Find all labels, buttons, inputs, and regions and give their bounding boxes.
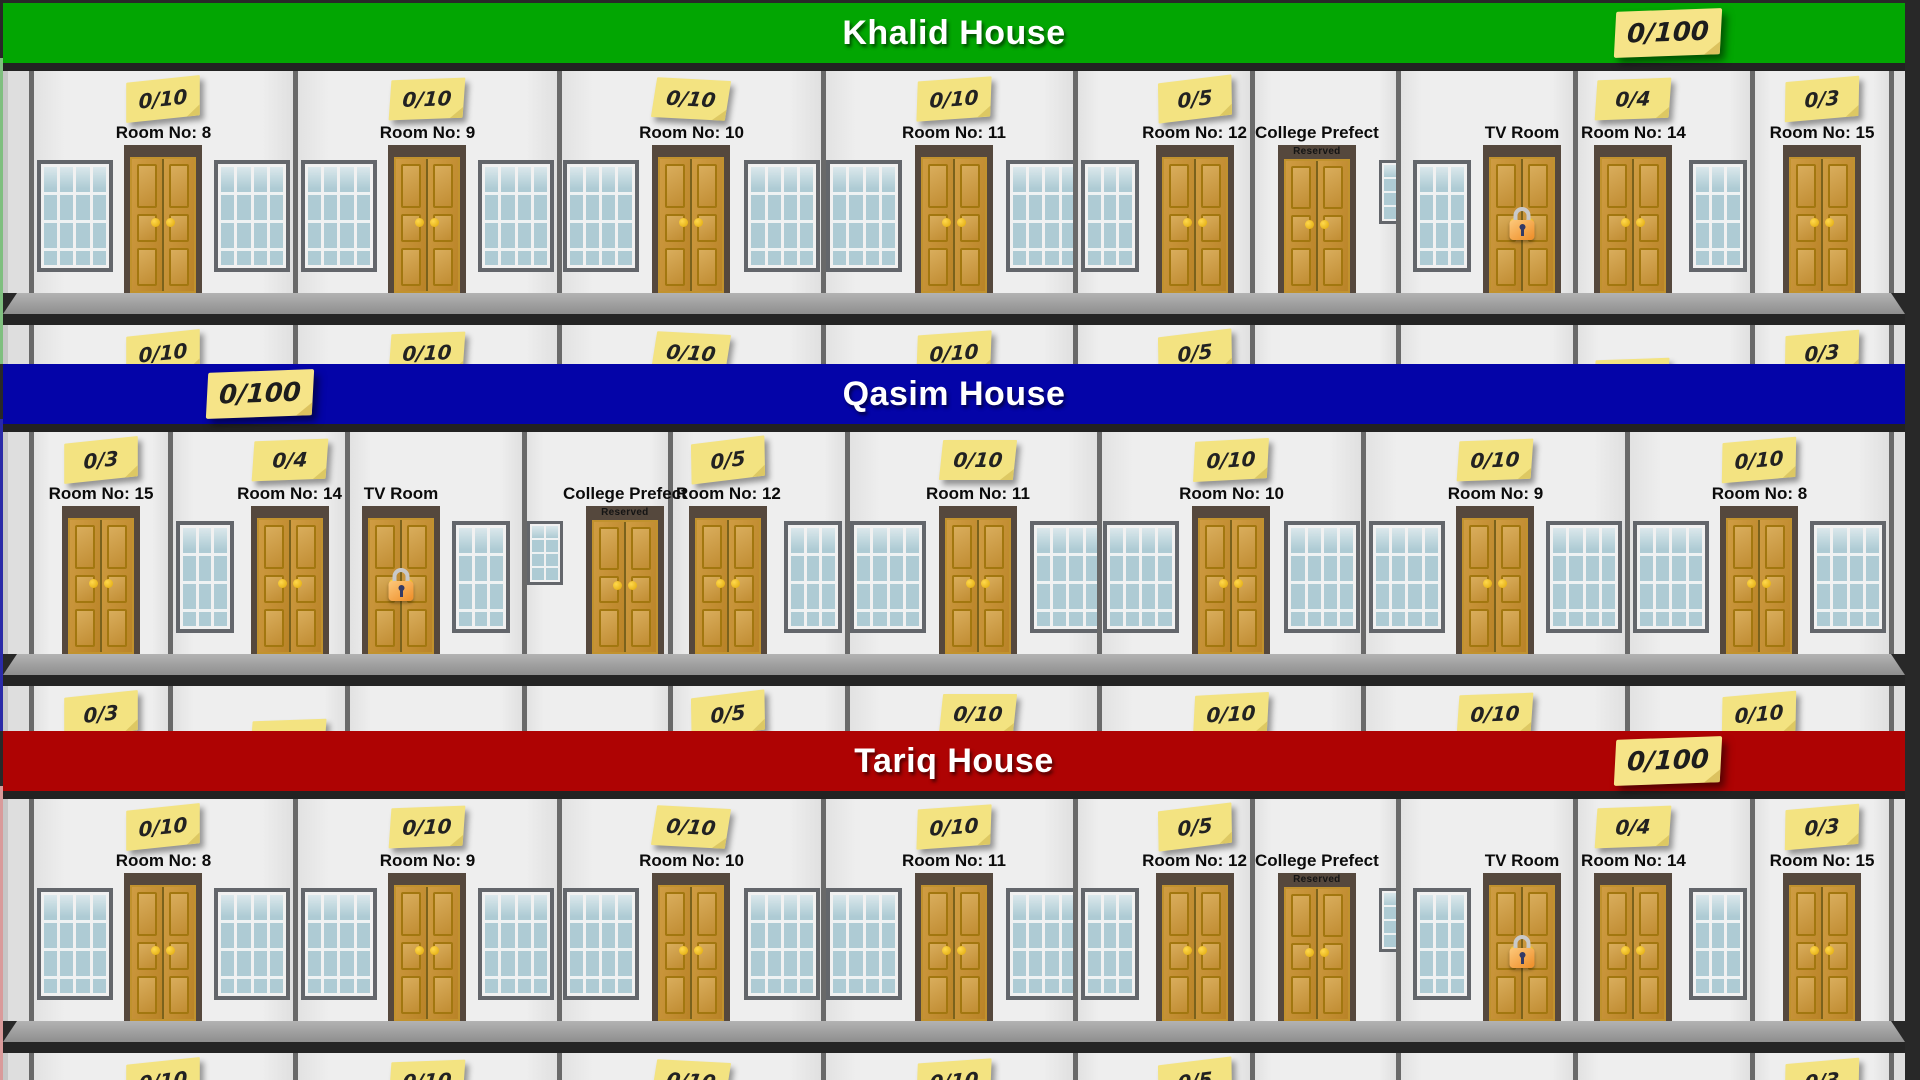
window-pane (1408, 528, 1421, 626)
room-window (478, 888, 554, 1000)
corridor-floor (3, 1021, 1905, 1053)
door-frame (1783, 873, 1861, 1021)
door-leaf (1318, 889, 1348, 1019)
door-frame (388, 145, 466, 293)
door-panel (1169, 892, 1189, 936)
door-panel (433, 214, 453, 242)
room-door[interactable] (592, 520, 658, 654)
window-pane (237, 167, 250, 265)
room-window (1103, 521, 1179, 633)
capacity-note: 0/5 (1157, 802, 1231, 851)
door-panel (1639, 976, 1659, 1014)
door-leaf (1496, 520, 1526, 652)
window-pane (1425, 528, 1438, 626)
door-leaf (1464, 520, 1496, 652)
room-label: Room No: 12 (1142, 851, 1247, 871)
door-leaf (1823, 159, 1853, 291)
capacity-note: 0/10 (389, 806, 466, 849)
door-panel (1205, 525, 1225, 569)
window-pane (237, 895, 250, 993)
door-leaf (70, 520, 102, 652)
door-frame (1192, 506, 1270, 654)
door-panel (1501, 609, 1521, 647)
door-column: 0/3Room No: 15 (49, 432, 154, 654)
door-panel (1169, 248, 1189, 286)
room-cell-room-no-10: 0/10Room No: 10 (557, 1053, 821, 1080)
window-pane (1712, 895, 1725, 993)
door-panel (1501, 525, 1521, 569)
window-pane (357, 895, 370, 993)
room-window (1006, 888, 1082, 1000)
locked-door[interactable] (368, 518, 434, 654)
door-column: 0/10Room No: 11 (926, 432, 1030, 654)
door-frame (1594, 145, 1672, 293)
room-cell-room-no-8: 0/10Room No: 8 (29, 1053, 293, 1080)
window-pane (1696, 895, 1709, 993)
room-door[interactable] (1789, 885, 1855, 1021)
room-window (1284, 521, 1360, 633)
window-pane (1013, 895, 1026, 993)
window-pane (1392, 528, 1405, 626)
room-cell-room-no-8: 0/10Room No: 8 (29, 799, 293, 1021)
room-window (1081, 160, 1139, 272)
house-capacity-note: 0/100 (1614, 736, 1722, 786)
room-label: Room No: 11 (902, 851, 1006, 871)
door-panel (1828, 976, 1848, 1014)
door-panel (665, 164, 685, 208)
reserved-sign: Reserved (586, 507, 664, 518)
door-panel (952, 525, 972, 569)
door-panel (960, 248, 980, 286)
room-cell-room-no-12: 0/5Room No: 12 (668, 432, 845, 654)
window-pane (1850, 528, 1863, 626)
door-panel (401, 214, 421, 242)
capacity-note: 0/4 (1595, 78, 1672, 121)
door-panel (1469, 609, 1489, 647)
door-column: 0/10Room No: 8 (116, 1053, 211, 1080)
window-pane (768, 167, 781, 265)
window-pane (221, 167, 234, 265)
window-pane (586, 895, 599, 993)
door-column: 0/3Room No: 15 (1770, 71, 1875, 293)
door-column: 0/10Room No: 8 (116, 325, 211, 364)
room-window (214, 160, 290, 272)
capacity-note: 0/5 (1157, 328, 1231, 364)
room-window (452, 521, 510, 633)
window-pane (214, 528, 227, 626)
room-cell-college-prefect: College PrefectReserved (1250, 1053, 1396, 1080)
room-cell-room-no-14: 0/4Room No: 14 (1573, 325, 1750, 364)
corridor-upper-floor: 0/10Room No: 80/10Room No: 90/10Room No:… (3, 71, 1905, 293)
door-leaf (594, 522, 626, 652)
room-door[interactable] (257, 518, 323, 654)
door-panel (1607, 214, 1627, 242)
capacity-note: 0/10 (1193, 438, 1269, 482)
door-panel (169, 214, 189, 242)
door-leaf (1164, 159, 1196, 291)
door-column: 0/10Room No: 8 (116, 71, 211, 293)
capacity-note: 0/3 (1785, 76, 1859, 123)
door-panel (952, 609, 972, 647)
tariq-house-block: Tariq House0/1000/10Room No: 80/10Room N… (3, 731, 1905, 1080)
window-pane (1866, 528, 1879, 626)
window-pane (602, 895, 615, 993)
room-cell-room-no-10: 0/10Room No: 10 (557, 325, 821, 364)
window-pane (1436, 895, 1449, 993)
door-panel (1639, 164, 1659, 208)
window-pane (784, 895, 797, 993)
room-label: Room No: 10 (1179, 484, 1284, 504)
room-label: College Prefect (1255, 851, 1379, 871)
window-pane (183, 528, 196, 626)
door-panel (1796, 942, 1816, 970)
room-cell-room-no-9: 0/10Room No: 9 (1361, 686, 1625, 731)
door-panel (375, 609, 395, 647)
door-panel (407, 609, 427, 647)
room-door[interactable] (1789, 157, 1855, 293)
capacity-note: 0/5 (691, 689, 765, 731)
window-pane (1119, 895, 1132, 993)
capacity-note: 0/10 (389, 78, 466, 121)
window-pane (1088, 167, 1101, 265)
room-door[interactable] (921, 157, 987, 293)
ceiling-strip (3, 424, 1905, 432)
door-column: 0/10Room No: 10 (1179, 686, 1284, 731)
door-panel (1205, 575, 1225, 603)
door-panel (960, 892, 980, 936)
window-pane (199, 528, 212, 626)
capacity-note: 0/10 (651, 77, 731, 121)
capacity-note: 0/10 (916, 1058, 991, 1080)
door-leaf (1823, 887, 1853, 1019)
door-panel (1796, 248, 1816, 286)
room-cell-room-no-14: 0/4Room No: 14 (1573, 1053, 1750, 1080)
capacity-note: 0/4 (1593, 358, 1670, 364)
window-pane (459, 528, 472, 626)
door-leaf (396, 159, 428, 291)
door-panel (702, 575, 722, 603)
door-leaf (1318, 161, 1348, 291)
room-door[interactable] (945, 518, 1011, 654)
house-title: Tariq House (854, 742, 1053, 781)
door-panel (928, 892, 948, 936)
room-window (1546, 521, 1622, 633)
door-panel (631, 527, 651, 570)
door-leaf (923, 887, 955, 1019)
door-leaf (396, 887, 428, 1019)
capacity-note: 0/3 (1785, 330, 1859, 364)
door-column: College PrefectReserved (563, 686, 687, 731)
window-pane (1833, 528, 1846, 626)
room-cell-room-no-15: 0/3Room No: 15 (1750, 71, 1889, 293)
door-panel (665, 248, 685, 286)
room-window (176, 521, 234, 633)
door-panel (1639, 942, 1659, 970)
door-column: 0/10Room No: 9 (1448, 432, 1543, 654)
capacity-note: 0/4 (249, 719, 326, 731)
window-pane (1696, 167, 1709, 265)
room-door[interactable] (1462, 518, 1528, 654)
lock-body (389, 581, 414, 601)
door-panel (1733, 609, 1753, 647)
door-panel (984, 525, 1004, 569)
window-pane (1291, 528, 1304, 626)
door-panel (1607, 164, 1627, 208)
door-column: 0/3Room No: 15 (49, 686, 154, 731)
room-door[interactable] (130, 157, 196, 293)
capacity-note: 0/3 (1785, 804, 1859, 851)
corridor-end-wall (1889, 71, 1905, 293)
khalid-house-block: Khalid House0/1000/10Room No: 80/10Room … (3, 3, 1905, 364)
window-pane (340, 167, 353, 265)
corridor-upper-floor: 0/3Room No: 150/4Room No: 14TV RoomColle… (3, 432, 1905, 654)
door-leaf (428, 159, 458, 291)
window-pane (340, 895, 353, 993)
door-frame (388, 873, 466, 1021)
room-cell-tv-room: TV Room (1396, 325, 1573, 364)
door-panel (75, 609, 95, 647)
room-door[interactable] (394, 157, 460, 293)
door-leaf (1196, 887, 1226, 1019)
door-panel (1501, 575, 1521, 603)
door-panel (1291, 215, 1311, 243)
room-window (1413, 888, 1471, 1000)
room-cell-room-no-14: 0/4Room No: 14 (1573, 71, 1750, 293)
door-frame (1483, 873, 1561, 1021)
door-panel (1291, 943, 1311, 971)
door-panel (1828, 164, 1848, 208)
door-panel (1323, 894, 1343, 937)
room-door[interactable] (130, 885, 196, 1021)
room-window (850, 521, 926, 633)
door-frame (915, 873, 993, 1021)
door-column: TV Room (1483, 325, 1561, 364)
door-panel (1607, 976, 1627, 1014)
room-cell-room-no-12: 0/5Room No: 12 (1073, 799, 1250, 1021)
door-panel (137, 164, 157, 208)
window-pane (570, 895, 583, 993)
locked-door[interactable] (1489, 885, 1555, 1021)
door-panel (1796, 976, 1816, 1014)
door-column: 0/10Room No: 9 (380, 71, 475, 293)
window-pane (882, 167, 895, 265)
room-label: Room No: 11 (902, 123, 1006, 143)
door-panel (169, 248, 189, 286)
door-column: College PrefectReserved (1255, 799, 1379, 1021)
door-column: 0/10Room No: 11 (902, 71, 1006, 293)
window-pane (1013, 167, 1026, 265)
door-panel (264, 575, 284, 603)
door-column: 0/10Room No: 9 (380, 799, 475, 1021)
window-pane (1727, 895, 1740, 993)
door-panel (697, 976, 717, 1014)
room-window (1006, 160, 1082, 272)
window-pane (1069, 528, 1082, 626)
capacity-note: 0/3 (64, 436, 138, 484)
room-cell-tv-room: TV Room (1396, 799, 1573, 1021)
door-frame (915, 145, 993, 293)
door-panel (734, 575, 754, 603)
door-panel (1765, 609, 1785, 647)
door-frame (1594, 873, 1672, 1021)
window-pane (1029, 167, 1042, 265)
locked-door[interactable] (1489, 157, 1555, 293)
room-door[interactable] (1284, 887, 1350, 1021)
room-cell-room-no-11: 0/10Room No: 11 (821, 1053, 1073, 1080)
house-capacity-note: 0/100 (206, 369, 314, 419)
window-pane (60, 167, 73, 265)
door-panel (1323, 215, 1343, 243)
floor-edge (3, 1042, 1905, 1053)
door-panel (599, 609, 619, 647)
door-panel (1323, 248, 1343, 286)
room-door[interactable] (1726, 518, 1792, 654)
door-panel (107, 609, 127, 647)
room-cell-room-no-10: 0/10Room No: 10 (1097, 686, 1361, 731)
door-leaf (102, 520, 132, 652)
room-window (214, 888, 290, 1000)
door-panel (1639, 214, 1659, 242)
door-panel (1496, 892, 1516, 936)
door-column: 0/10Room No: 11 (902, 325, 1006, 364)
door-leaf (1286, 889, 1318, 1019)
room-label: Room No: 11 (926, 484, 1030, 504)
door-panel (264, 609, 284, 647)
room-window (784, 521, 842, 633)
door-panel (928, 248, 948, 286)
room-label: College Prefect (563, 484, 687, 504)
room-label: Room No: 8 (1712, 484, 1807, 504)
room-door[interactable] (1284, 159, 1350, 293)
room-label: Room No: 9 (380, 123, 475, 143)
door-frame: Reserved (1278, 145, 1356, 293)
window-pane (1053, 528, 1066, 626)
door-leaf (1791, 159, 1823, 291)
door-panel (702, 609, 722, 647)
room-window (826, 888, 902, 1000)
window-pane (849, 895, 862, 993)
door-frame (1456, 506, 1534, 654)
room-door[interactable] (658, 157, 724, 293)
room-door[interactable] (695, 518, 761, 654)
room-cell-room-no-12: 0/5Room No: 12 (1073, 325, 1250, 364)
room-cell-room-no-10: 0/10Room No: 10 (1097, 432, 1361, 654)
door-panel (296, 525, 316, 569)
room-door[interactable] (1162, 885, 1228, 1021)
room-door[interactable] (1198, 518, 1264, 654)
room-window (744, 160, 820, 272)
window-pane (1126, 528, 1139, 626)
door-panel (1639, 248, 1659, 286)
door-panel (433, 942, 453, 970)
door-panel (665, 976, 685, 1014)
door-panel (1291, 166, 1311, 209)
room-door[interactable] (1600, 157, 1666, 293)
door-panel (1169, 164, 1189, 208)
door-panel (1828, 248, 1848, 286)
corridor-end-wall (3, 432, 29, 654)
door-panel (1237, 525, 1257, 569)
door-panel (401, 892, 421, 936)
room-door[interactable] (394, 885, 460, 1021)
door-column: 0/10Room No: 10 (639, 1053, 744, 1080)
door-frame (62, 506, 140, 654)
room-cell-room-no-8: 0/10Room No: 8 (29, 71, 293, 293)
door-leaf (1634, 887, 1664, 1019)
room-door[interactable] (921, 885, 987, 1021)
room-label: Room No: 12 (1142, 123, 1247, 143)
room-window (1689, 888, 1747, 1000)
room-door[interactable] (1162, 157, 1228, 293)
door-panel (1323, 976, 1343, 1014)
room-cell-room-no-14: 0/4Room No: 14 (1573, 799, 1750, 1021)
room-door[interactable] (1600, 885, 1666, 1021)
door-panel (734, 609, 754, 647)
door-leaf (729, 520, 759, 652)
window-pane (1553, 528, 1566, 626)
room-window (1369, 521, 1445, 633)
door-leaf (132, 159, 164, 291)
door-panel (1828, 214, 1848, 242)
window-pane (882, 895, 895, 993)
door-panel (928, 976, 948, 1014)
corridor-floor (3, 654, 1905, 686)
door-panel (375, 525, 395, 569)
door-leaf (132, 887, 164, 1019)
door-panel (960, 214, 980, 242)
window-pane (1689, 528, 1702, 626)
lock-body (1510, 948, 1535, 968)
door-panel (433, 892, 453, 936)
room-door[interactable] (68, 518, 134, 654)
window-pane (1110, 528, 1123, 626)
door-panel (1496, 248, 1516, 286)
door-frame (652, 873, 730, 1021)
room-label: Room No: 8 (116, 123, 211, 143)
lock-shackle (1514, 207, 1531, 220)
room-cell-room-no-9: 0/10Room No: 9 (293, 71, 557, 293)
window-pane (1420, 895, 1433, 993)
room-door[interactable] (658, 885, 724, 1021)
window-pane (1656, 528, 1669, 626)
room-cell-college-prefect: College PrefectReserved (1250, 799, 1396, 1021)
door-panel (433, 976, 453, 1014)
window-pane (800, 895, 813, 993)
window-pane (270, 167, 283, 265)
window-pane (1672, 528, 1685, 626)
door-column: 0/5Room No: 12 (1142, 799, 1247, 1021)
capacity-note: 0/10 (127, 1057, 201, 1080)
door-frame (939, 506, 1017, 654)
door-panel (697, 164, 717, 208)
door-column: 0/3Room No: 15 (1770, 325, 1875, 364)
door-column: 0/10Room No: 10 (639, 799, 744, 1021)
lock-icon (1510, 935, 1535, 968)
window-pane (1029, 895, 1042, 993)
window-pane (93, 895, 106, 993)
door-column: 0/5Room No: 12 (1142, 71, 1247, 293)
room-window (1810, 521, 1886, 633)
hostel-allocation-view: { "page": { "background": "#282828" }, "… (0, 0, 1920, 1080)
window-pane (890, 528, 903, 626)
window-pane (1340, 528, 1353, 626)
door-leaf (947, 520, 979, 652)
door-panel (734, 525, 754, 569)
door-panel (960, 976, 980, 1014)
window-pane (534, 895, 547, 993)
window-pane (602, 167, 615, 265)
room-label: Room No: 15 (49, 484, 154, 504)
